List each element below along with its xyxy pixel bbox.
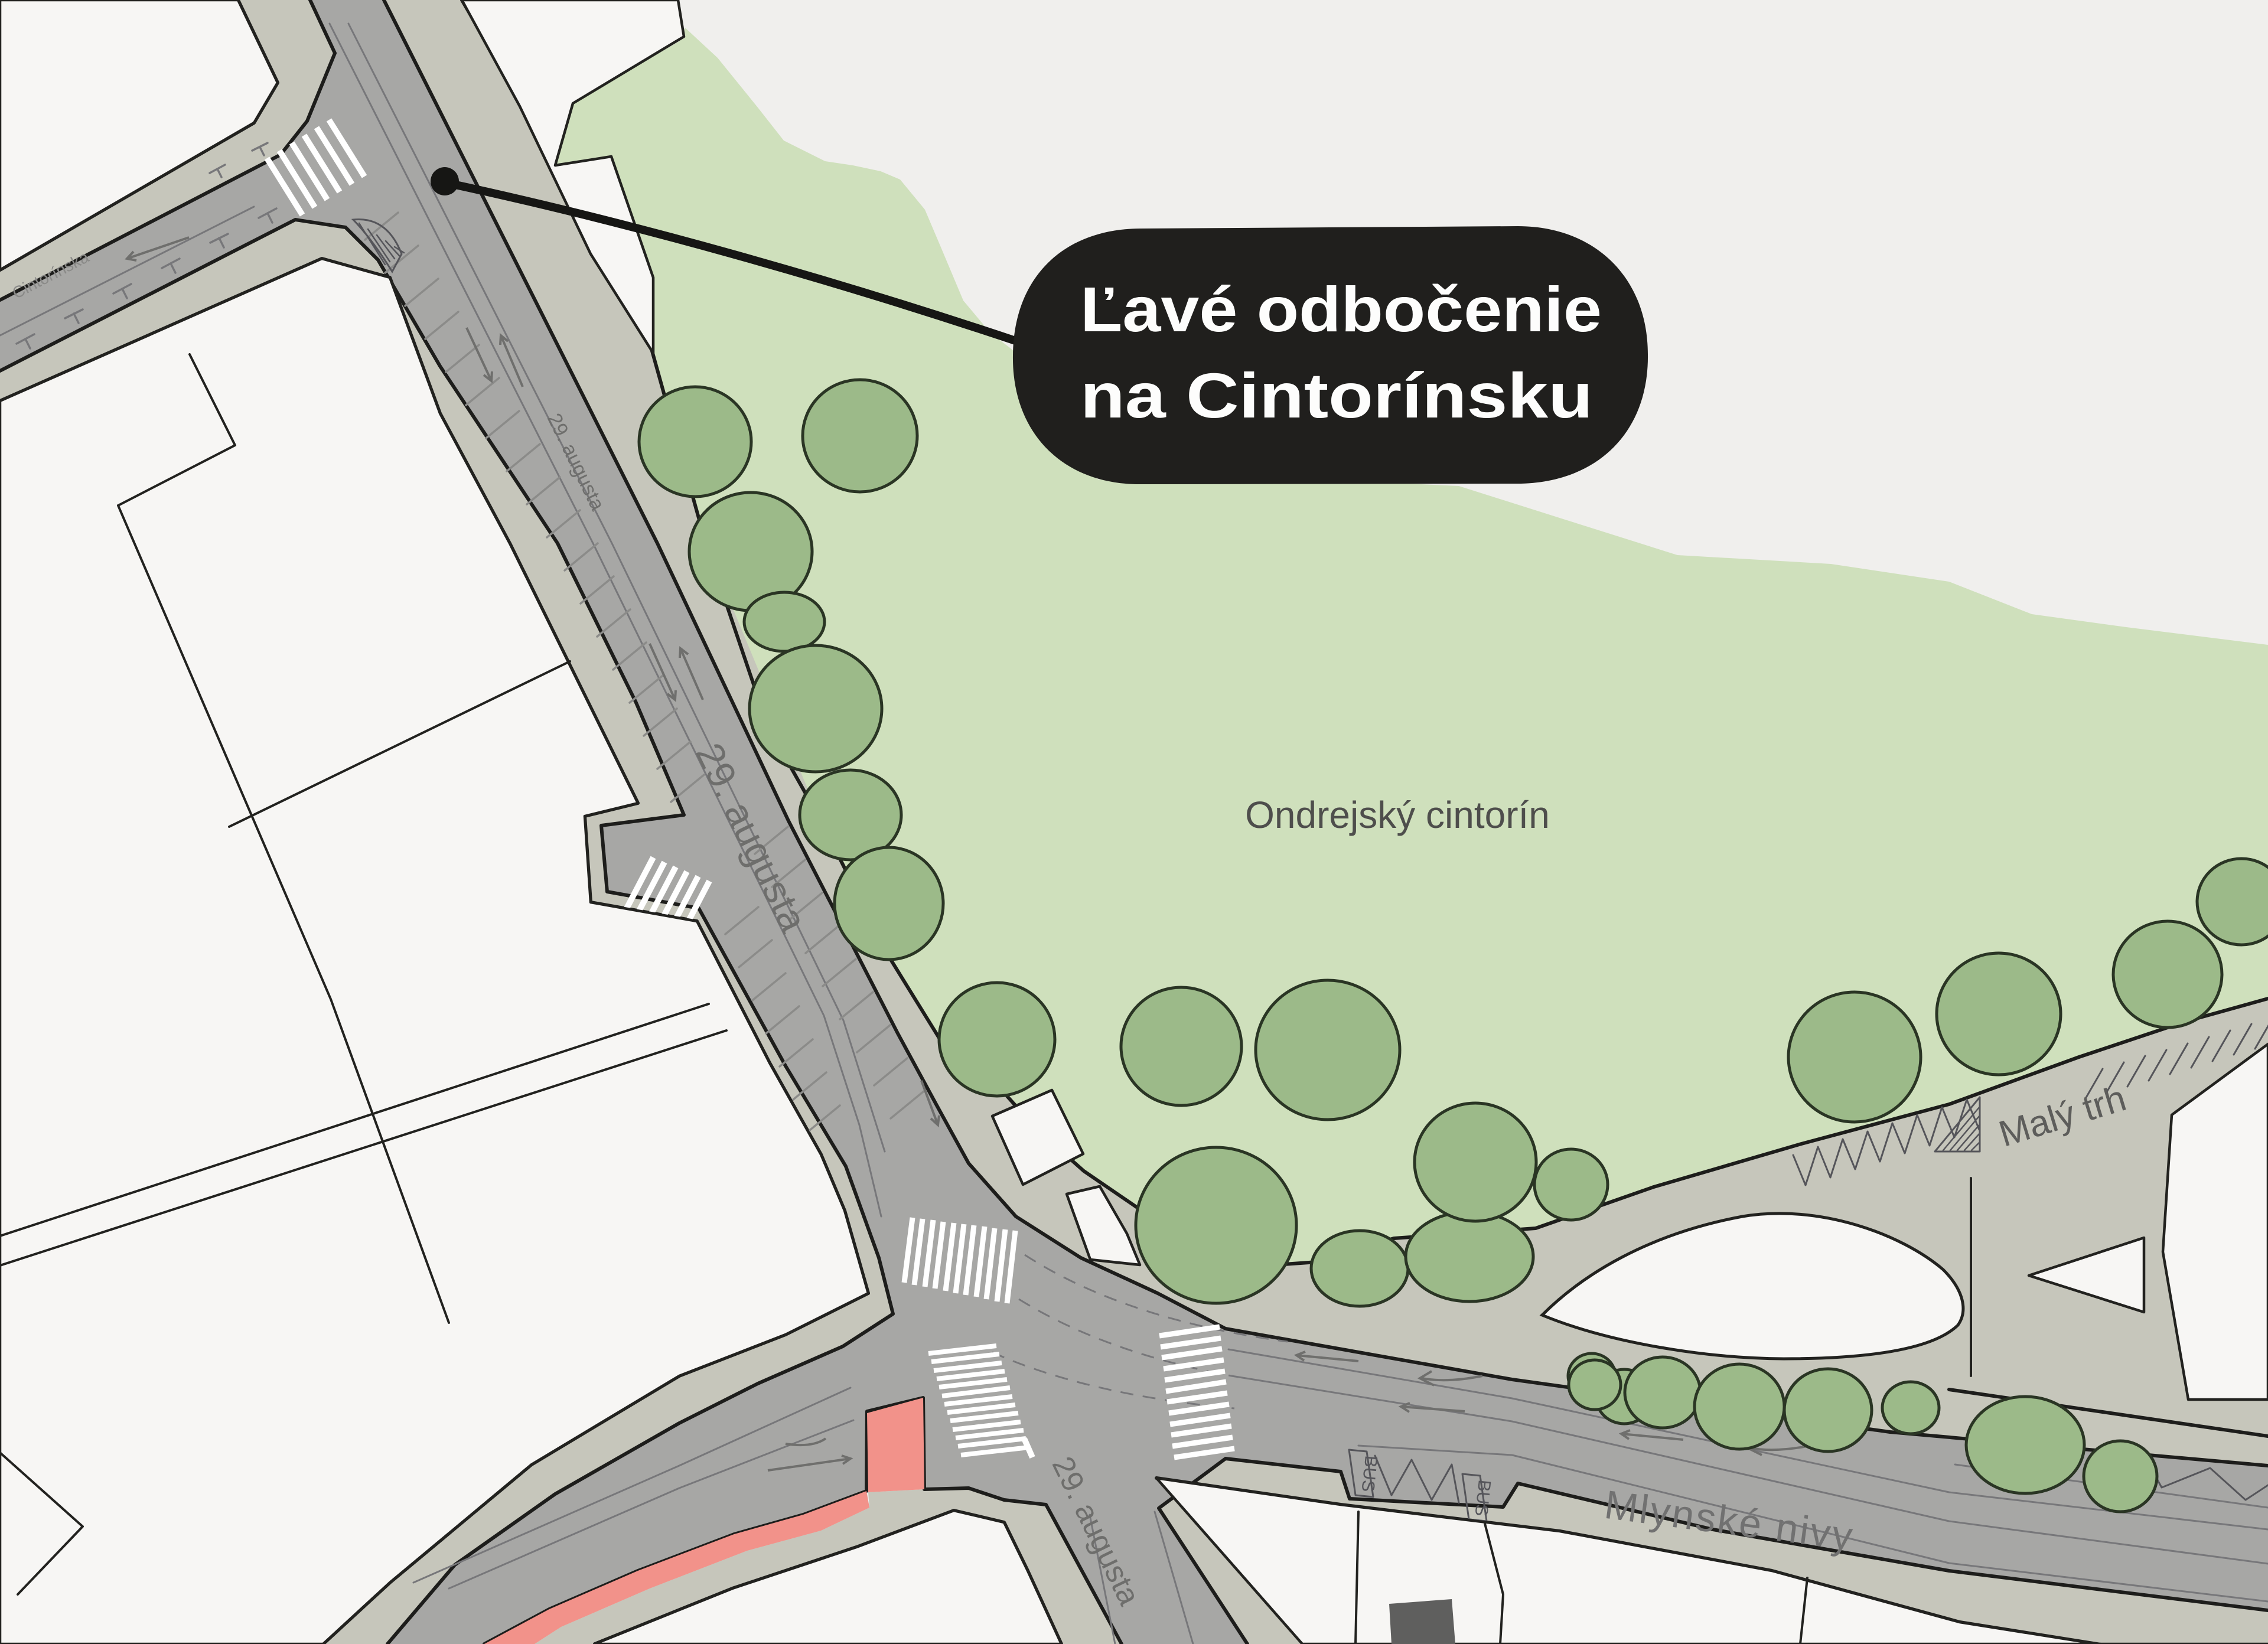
svg-text:BUS: BUS: [1471, 1479, 1494, 1517]
svg-text:Ondrejský cintorín: Ondrejský cintorín: [1245, 794, 1550, 836]
svg-text:Ľavé odbočenie: Ľavé odbočenie: [1080, 273, 1602, 345]
svg-text:na Cintorínsku: na Cintorínsku: [1080, 360, 1593, 431]
